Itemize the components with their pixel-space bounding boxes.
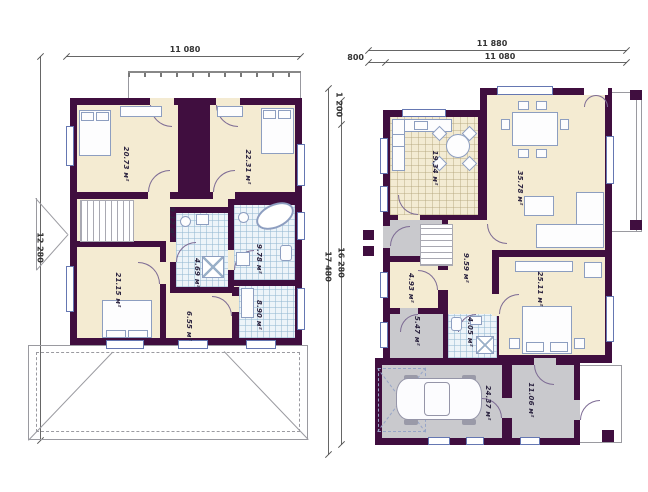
chimney-block [363,230,374,240]
chimney-block [363,246,374,256]
pillow-icon [550,342,568,352]
dim-line-top-left-plan [66,56,301,57]
door-opening [534,358,556,365]
window [380,186,388,212]
room-label-bedroom1: 20.73 м² [121,142,131,186]
terrace-rail [636,92,637,232]
closet-icon [241,288,254,318]
room-label-wardrobe: 6.55 м² [184,304,194,348]
window [606,136,614,184]
dim-tick [338,441,345,448]
dim-label-width-inner: 11 080 [455,52,545,61]
pillow-icon [526,342,544,352]
floor-plan-sheet: 11 080 12 280 [0,0,648,492]
pillow-icon [81,112,94,121]
pillow-icon [278,110,291,119]
chair-icon [501,119,510,130]
room-label-bedroom3: 21.15 м² [113,268,123,312]
window [380,138,388,174]
chair-icon [536,101,547,110]
porch-outline [578,365,622,443]
room-label-kitchen: 19.34 м² [430,146,440,190]
interior-wall [178,105,210,192]
dim-label-offset-800: 800 [336,53,364,62]
washer-icon [236,252,250,266]
interior-wall [77,192,148,199]
pillow-icon [263,110,276,119]
window [606,296,614,342]
pillow-icon [96,112,109,121]
terrace-column [630,90,642,100]
pillow-icon [128,330,148,338]
door-opening [502,398,512,418]
room-label-bedroom2: 22.31 м² [243,145,253,189]
wardrobe-icon [217,106,243,117]
balcony-railing [128,71,301,77]
toilet-icon [451,317,462,331]
stove-icon [392,134,405,147]
window [380,322,388,348]
room-label-living: 35.78 м² [515,166,525,210]
pillow-icon [106,330,126,338]
dim-tick [623,59,630,66]
chair-icon [560,119,569,130]
window [497,86,553,95]
gable-line [36,198,37,270]
stairs [80,200,134,242]
dim-label-width: 11 080 [140,45,230,54]
window [297,288,305,330]
terrace-outline [610,92,642,232]
coffee-table-icon [524,196,554,216]
door-opening [480,222,487,246]
nightstand-icon [574,338,585,349]
toilet-icon [280,245,292,261]
room-label-storage: 5.47 м² [412,309,422,353]
sink-icon [414,121,428,130]
wardrobe-icon [120,106,162,117]
nightstand-icon [509,338,520,349]
door-opening [216,98,240,105]
interior-wall [232,312,239,338]
room-label-hall: 9.59 м² [461,246,471,290]
chair-icon [536,149,547,158]
room-label-wc: 4.69 м² [192,251,202,295]
porch-column [602,430,614,442]
sink-icon [180,216,191,227]
roof-dashed-outline [36,352,300,432]
window [297,212,305,240]
car-cabin-icon [424,382,450,416]
door-opening [150,98,174,105]
window [246,340,276,349]
interior-wall [235,192,295,199]
window [466,437,484,445]
armchair-icon [584,262,602,278]
shower-icon [476,336,494,354]
room-label-bath: 9.78 м² [254,237,264,281]
window [520,437,540,445]
interior-wall [160,284,166,338]
room-label-bath: 4.05 м² [465,310,475,354]
stairs [420,224,453,266]
window [66,266,74,312]
shower-icon [202,256,224,278]
dim-label-width-outer: 11 880 [447,39,537,48]
dim-tick [325,451,332,458]
terrace-column [630,220,642,230]
door-opening [574,400,580,420]
room-label-garage: 24.37 м² [483,381,493,425]
window [297,144,305,186]
window [428,437,450,445]
chair-icon [518,101,529,110]
dim-label-height-outer: 17 480 [324,245,333,289]
sink-icon [238,212,249,223]
door-opening [492,294,499,316]
window [66,126,74,166]
window [380,272,388,298]
dim-label-height-inner: 16 280 [337,241,346,285]
room-label-bedroom: 25.11 м² [535,267,545,311]
room-label-entry: 11.06 м² [526,378,536,422]
room-label-pantry: 4.93 м² [406,266,416,310]
dining-table-icon [512,112,558,146]
chair-icon [518,149,529,158]
interior-wall [232,287,239,296]
dim-line-top-outer [368,50,627,51]
interior-wall [443,314,448,358]
door-opening [584,88,608,95]
dim-label-offset-1200: 1 200 [335,87,344,123]
room-label-hall: 9.12 м² [167,200,177,244]
toilet-icon [196,214,209,225]
window [402,109,446,117]
door-opening [398,215,420,220]
room-label-laundry: 8.90 м² [254,293,264,337]
door-opening [438,270,448,290]
dim-tick [297,53,304,60]
sofa-icon [536,224,604,248]
interior-wall [160,241,166,262]
door-opening [383,226,390,248]
window [106,340,144,349]
dim-tick [623,47,630,54]
dim-line-top-inner [368,62,627,63]
interior-wall [170,192,213,199]
